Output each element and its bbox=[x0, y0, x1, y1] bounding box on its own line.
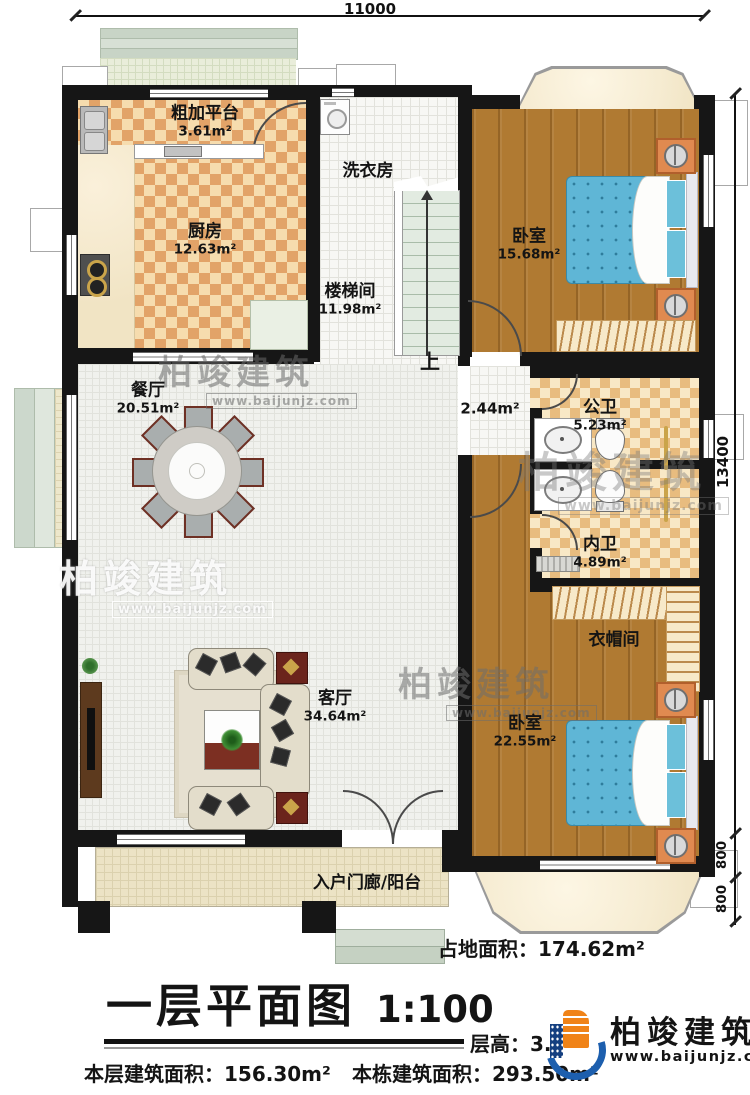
porch-column bbox=[78, 901, 110, 933]
entry-steps bbox=[335, 929, 443, 965]
nightstand bbox=[656, 682, 696, 718]
watermark: 柏竣建筑 www.baijunjz.com bbox=[518, 452, 729, 515]
window bbox=[66, 235, 77, 295]
side-table bbox=[276, 792, 308, 824]
dimension-width: 11000 bbox=[344, 0, 396, 18]
room-label-living: 客厅 34.64m² bbox=[304, 689, 367, 724]
window bbox=[117, 834, 245, 845]
window-frame bbox=[30, 208, 66, 252]
watermark: 柏竣建筑 www.baijunjz.com bbox=[398, 668, 597, 721]
bay-window-bottom bbox=[474, 870, 704, 934]
kitchen-sink bbox=[164, 146, 202, 157]
room-label-stairwell: 楼梯间 11.98m² bbox=[319, 282, 382, 317]
dimension-seg-a: 800 bbox=[714, 841, 730, 869]
dimension-height: 13400 bbox=[714, 436, 732, 488]
room-label-bedroom2: 卧室 22.55m² bbox=[494, 714, 557, 749]
plan-title-row: 一层平面图 1:100 bbox=[106, 970, 494, 1036]
utility-sink bbox=[80, 106, 108, 154]
brand-logo-icon bbox=[546, 1010, 604, 1072]
terrace-deck bbox=[100, 28, 296, 92]
room-label-corridor: 2.44m² bbox=[460, 400, 519, 417]
bed bbox=[566, 172, 700, 286]
dimension-line-right bbox=[734, 95, 736, 925]
nightstand bbox=[656, 288, 696, 324]
side-table bbox=[276, 652, 308, 684]
room-label-private-bath: 内卫 4.89m² bbox=[573, 535, 626, 570]
brand-url: www.baijunjz.com bbox=[610, 1049, 750, 1065]
room-label-kitchen: 厨房 12.63m² bbox=[174, 222, 237, 257]
room-label-bedroom1: 卧室 15.68m² bbox=[498, 227, 561, 262]
stairs-up-label: 上 bbox=[420, 351, 440, 374]
site-area-text: 占地面积：174.62m² bbox=[438, 933, 645, 962]
bay-window-top bbox=[516, 66, 702, 110]
tv bbox=[87, 708, 95, 770]
plant bbox=[82, 658, 98, 674]
staircase bbox=[394, 176, 458, 356]
floor-plan: 上 bbox=[0, 0, 750, 1095]
wardrobe bbox=[552, 586, 668, 620]
window bbox=[540, 860, 670, 870]
watermark: 柏竣建筑 www.baijunjz.com bbox=[158, 356, 357, 409]
porch-column bbox=[302, 901, 336, 933]
stove bbox=[80, 254, 110, 296]
room-label-laundry: 洗衣房 bbox=[343, 162, 394, 182]
kitchen-cabinet bbox=[250, 300, 308, 350]
window bbox=[703, 700, 714, 760]
brand-logo: 柏竣建筑 www.baijunjz.com bbox=[546, 1010, 750, 1072]
floor-area-text: 本层建筑面积：156.30m² bbox=[84, 1058, 331, 1087]
window bbox=[703, 155, 714, 227]
title-underline bbox=[104, 1039, 464, 1044]
floor-height-text: 层高：3. bbox=[470, 1028, 552, 1057]
room-label-porch: 入户门廊/阳台 bbox=[313, 874, 421, 894]
room-label-public-bath: 公卫 5.23m² bbox=[573, 398, 626, 433]
nightstand bbox=[656, 828, 696, 864]
window bbox=[150, 89, 268, 98]
kitchen-counter-marble bbox=[78, 145, 135, 352]
room-label-cloakroom: 衣帽间 bbox=[589, 631, 640, 651]
nightstand bbox=[656, 138, 696, 174]
washing-machine bbox=[320, 99, 350, 135]
wardrobe bbox=[556, 320, 696, 352]
dimension-seg-b: 800 bbox=[714, 885, 730, 913]
bed bbox=[566, 716, 700, 828]
wardrobe bbox=[666, 586, 700, 692]
plant bbox=[221, 729, 243, 751]
watermark: 柏竣建筑 www.baijunjz.com bbox=[60, 560, 273, 618]
window bbox=[66, 395, 77, 540]
room-label-dining: 餐厅 20.51m² bbox=[117, 381, 180, 416]
room-label-rough-platform: 粗加平台 3.61m² bbox=[171, 104, 239, 139]
page-title: 一层平面图 bbox=[106, 970, 356, 1036]
brand-name: 柏竣建筑 bbox=[610, 1017, 750, 1050]
dining-table-set bbox=[132, 406, 260, 534]
window bbox=[332, 88, 354, 97]
plan-scale: 1:100 bbox=[376, 988, 494, 1031]
